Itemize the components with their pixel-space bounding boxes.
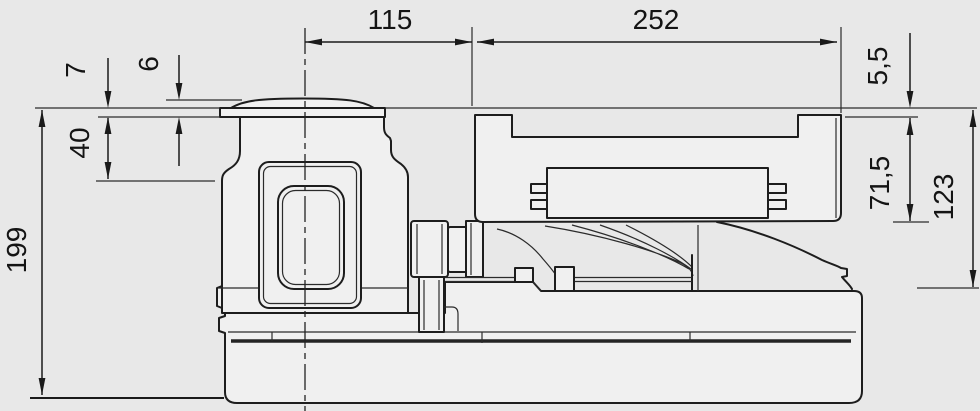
- technical-drawing-canvas: 115 252 7 6 40 199: [0, 0, 980, 411]
- skimmer-tower: [217, 117, 408, 313]
- dim-252-label: 252: [633, 4, 680, 35]
- pump-outlet: [411, 221, 483, 277]
- motor-body: [531, 168, 786, 218]
- cap-flange: [220, 108, 385, 117]
- dim-199-label: 199: [1, 227, 32, 274]
- dim-7-label: 7: [60, 62, 91, 78]
- dim-71-5-label: 71,5: [864, 156, 895, 211]
- dimension-drawing: 115 252 7 6 40 199: [0, 0, 980, 411]
- dim-5-5-label: 5,5: [862, 47, 893, 86]
- cap-dome: [231, 99, 374, 109]
- dim-115-label: 115: [368, 4, 413, 35]
- dim-123-label: 123: [928, 174, 959, 221]
- dim-40-label: 40: [64, 127, 95, 158]
- dim-6-label: 6: [133, 56, 164, 72]
